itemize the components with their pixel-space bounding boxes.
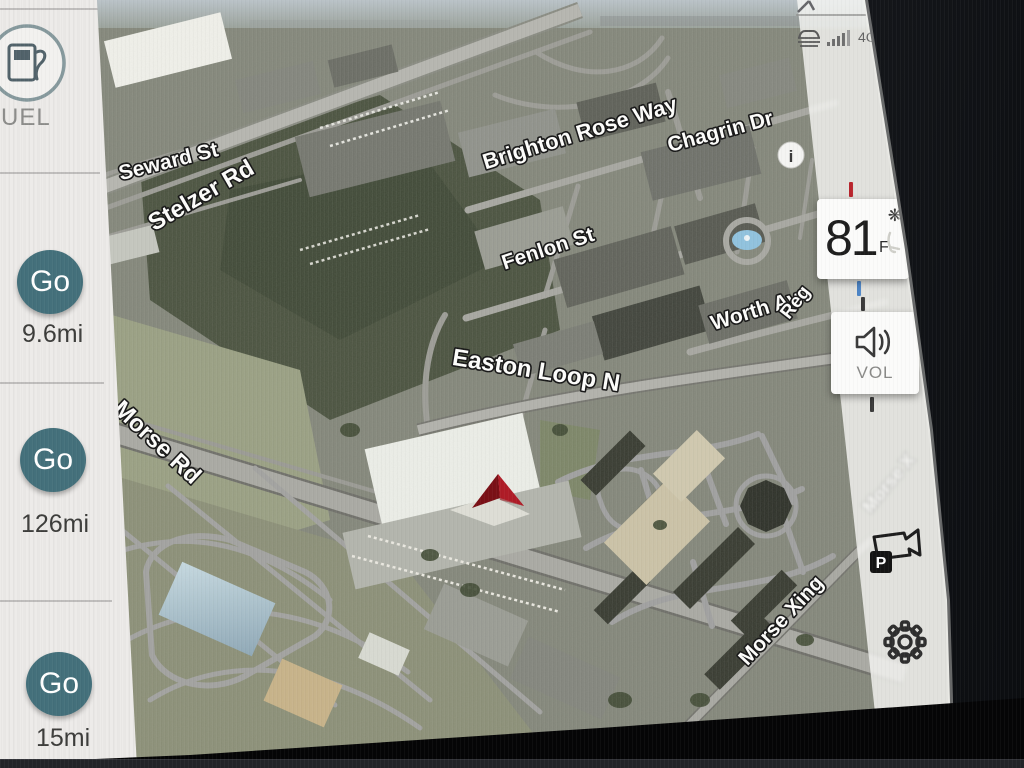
signal-bars-icon — [827, 27, 853, 47]
parking-camera-icon: P — [866, 525, 928, 577]
temperature-control[interactable]: 81 F ❋ — [817, 199, 909, 279]
info-icon[interactable]: i — [778, 142, 804, 168]
go-button-3[interactable]: Go — [26, 652, 92, 716]
device-bezel-bottom-face — [0, 759, 1024, 768]
fuel-label: UEL — [1, 104, 51, 132]
gear-icon — [878, 614, 932, 670]
go-distance-3: 15mi — [36, 724, 90, 753]
notification-icon-partial — [797, 0, 817, 14]
go-button-2[interactable]: Go — [20, 428, 86, 492]
volume-tick-top — [861, 297, 865, 311]
info-icon-letter: i — [789, 147, 794, 166]
divider — [0, 600, 112, 602]
speaker-icon — [852, 323, 898, 361]
status-divider — [796, 14, 866, 16]
settings-button[interactable] — [878, 614, 932, 670]
temp-hot-tick — [849, 182, 853, 197]
parking-badge: P — [876, 555, 887, 572]
volume-control[interactable]: VOL — [831, 312, 919, 394]
volume-label: VOL — [856, 363, 893, 383]
go-distance-1: 9.6mi — [22, 320, 83, 349]
connected-car-icon — [796, 26, 822, 48]
temp-cold-tick — [857, 281, 861, 296]
infotainment-screen: Seward St Stelzer Rd Brighton Rose Way C… — [0, 0, 1024, 768]
divider — [0, 8, 98, 10]
go-button-1[interactable]: Go — [17, 250, 83, 314]
parking-camera-button[interactable]: P — [866, 525, 928, 577]
fuel-pump-icon[interactable] — [0, 22, 68, 104]
divider — [0, 382, 104, 384]
go-distance-2: 126mi — [21, 510, 89, 539]
volume-tick-bottom — [870, 397, 874, 412]
temperature-value: 81 — [825, 209, 877, 267]
divider — [0, 172, 100, 174]
